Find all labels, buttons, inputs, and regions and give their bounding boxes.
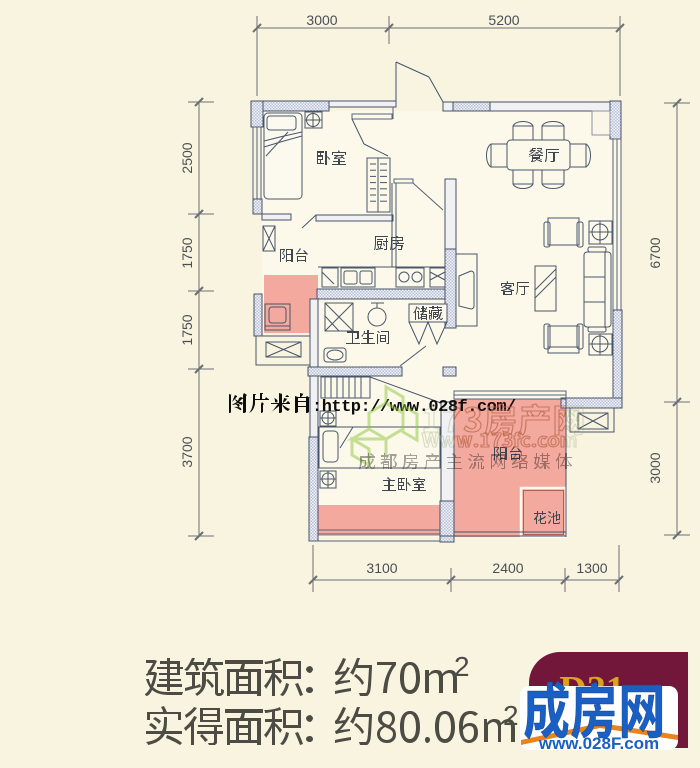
svg-text:1300: 1300 [576, 560, 607, 576]
svg-text:3700: 3700 [179, 436, 195, 467]
svg-text:3000: 3000 [647, 452, 663, 483]
svg-text:2: 2 [454, 651, 470, 682]
svg-text:6700: 6700 [647, 237, 663, 268]
svg-text:2400: 2400 [492, 560, 523, 576]
svg-text:3000: 3000 [306, 12, 337, 28]
svg-text:3100: 3100 [366, 560, 397, 576]
svg-text:2500: 2500 [179, 142, 195, 173]
svg-text::http://www.028f.com/: :http://www.028f.com/ [312, 398, 516, 417]
svg-text:5200: 5200 [488, 12, 519, 28]
svg-text:1750: 1750 [179, 314, 195, 345]
svg-text:1750: 1750 [179, 237, 195, 268]
svg-text:2: 2 [503, 700, 519, 731]
svg-text:www.028F.com: www.028F.com [538, 734, 659, 753]
